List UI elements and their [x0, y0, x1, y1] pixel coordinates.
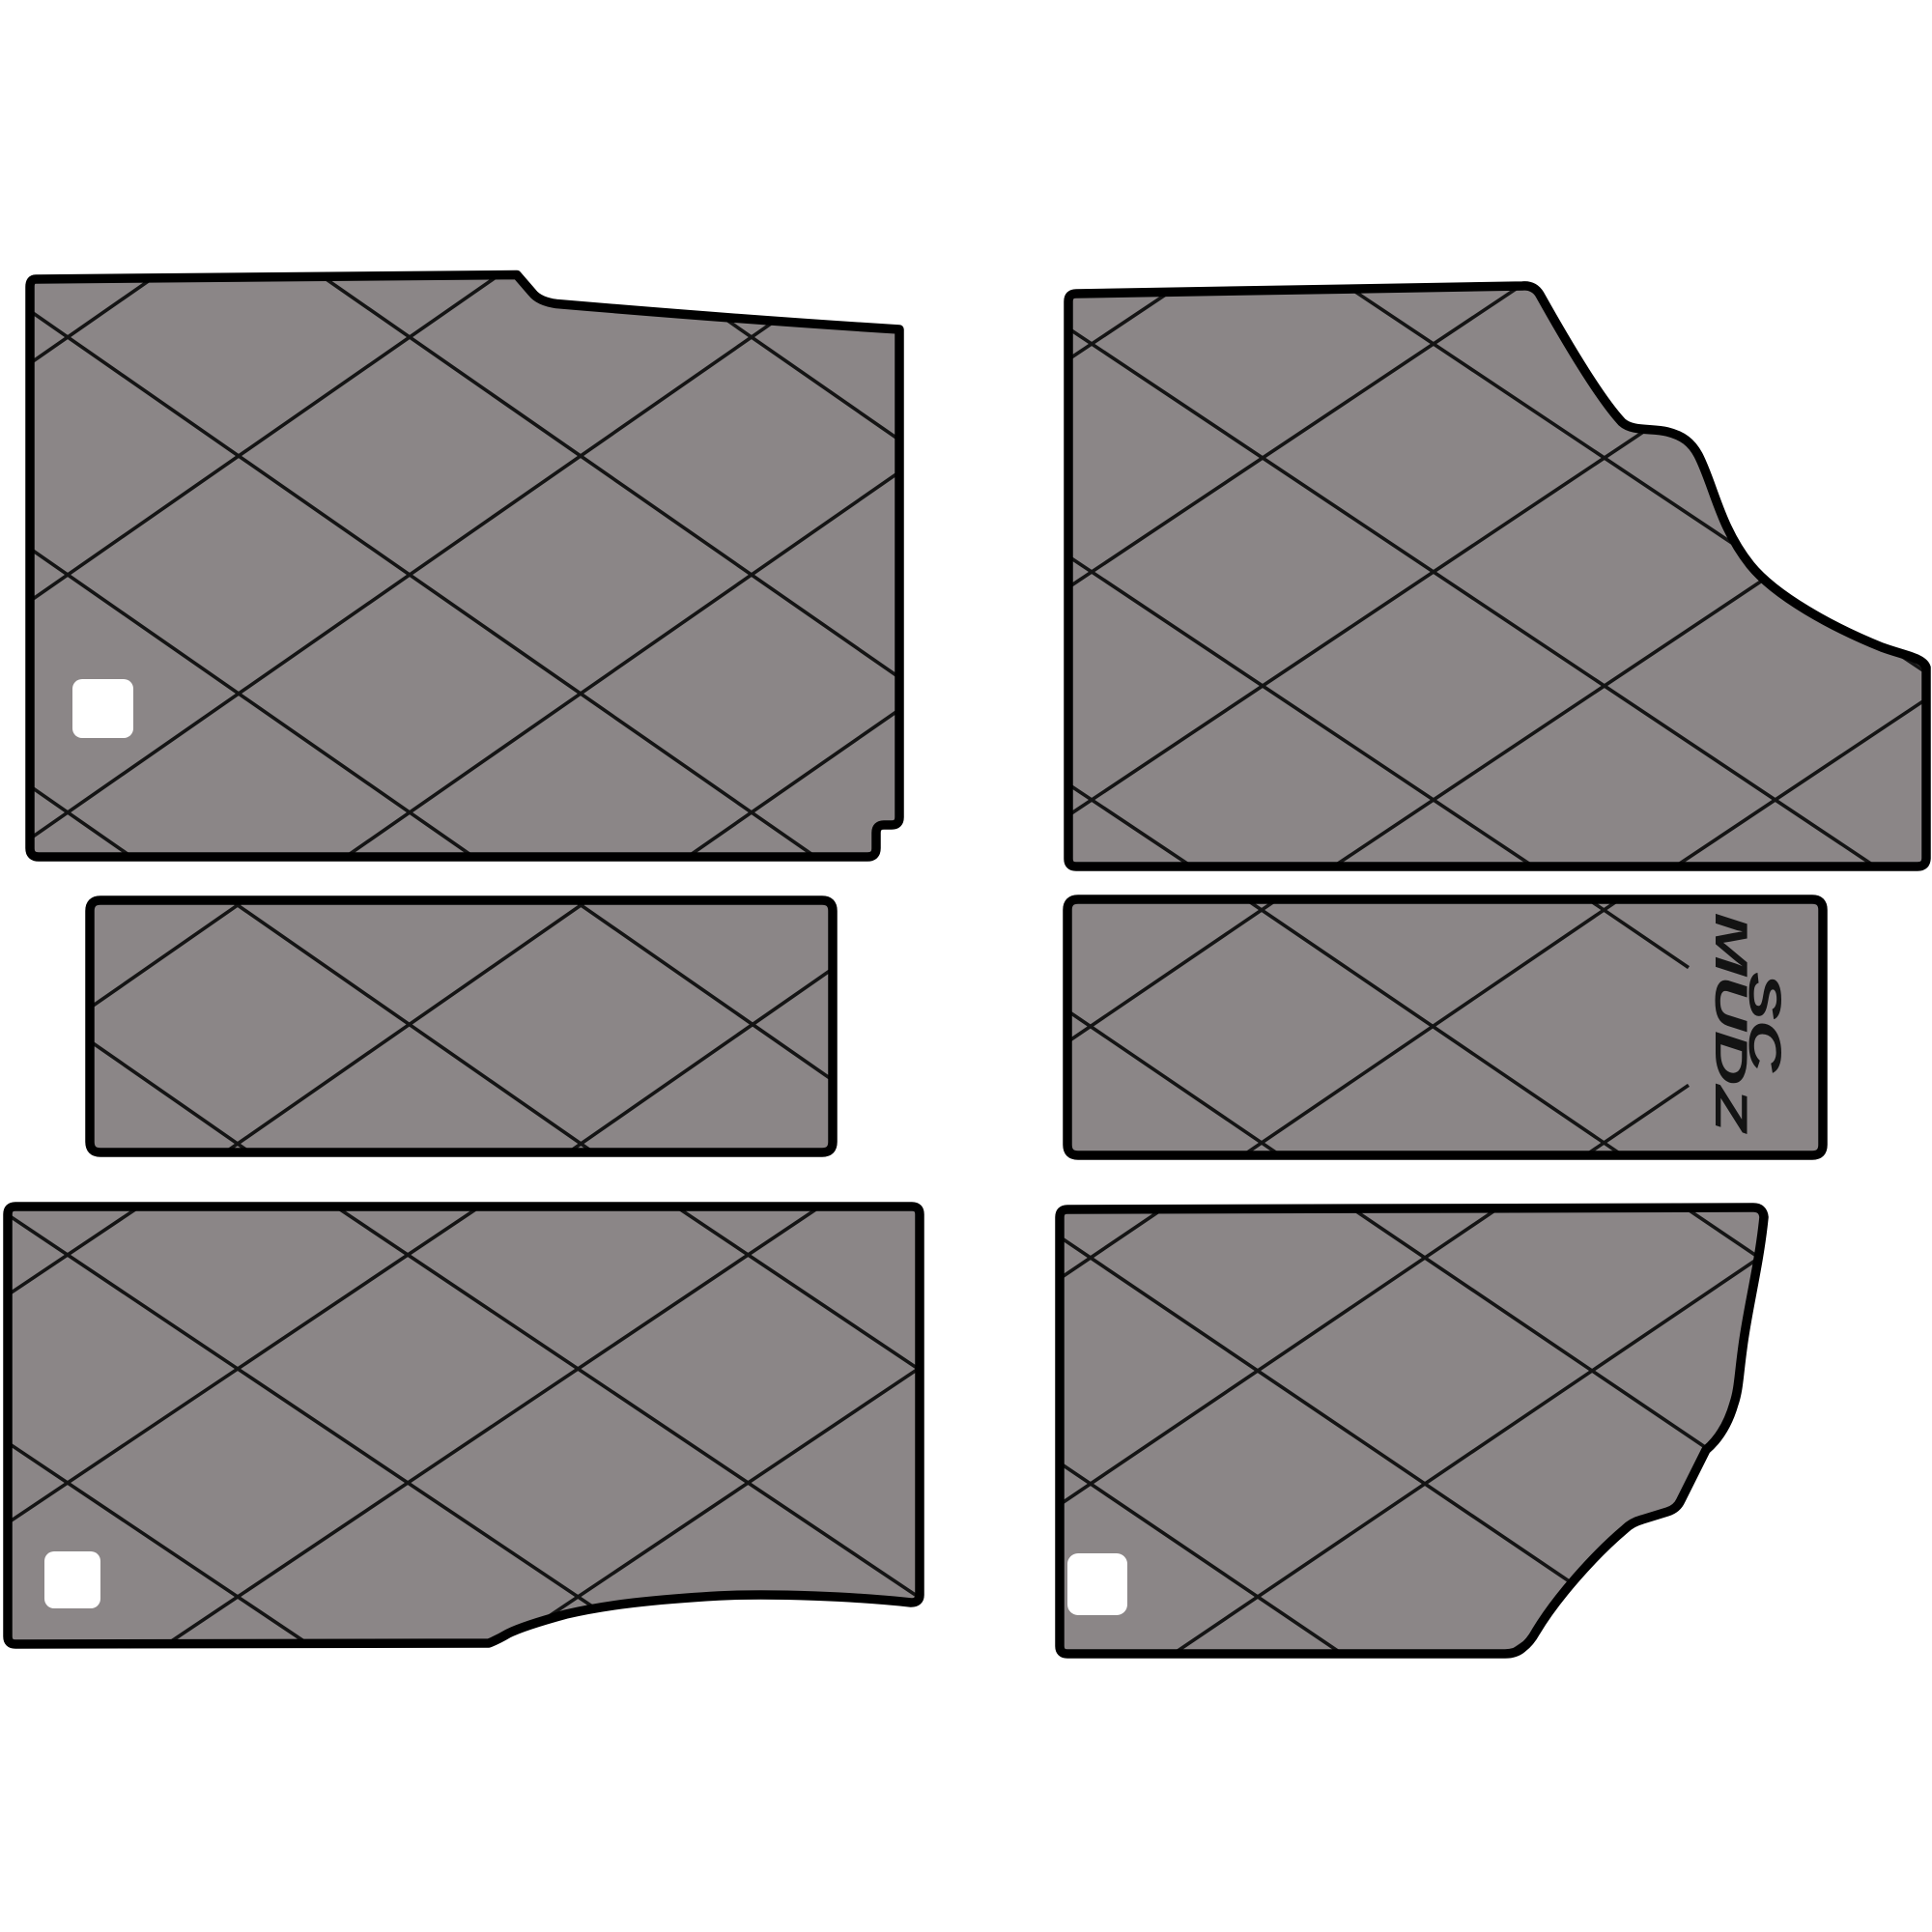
- svg-text:MUDZ: MUDZ: [1706, 913, 1757, 1136]
